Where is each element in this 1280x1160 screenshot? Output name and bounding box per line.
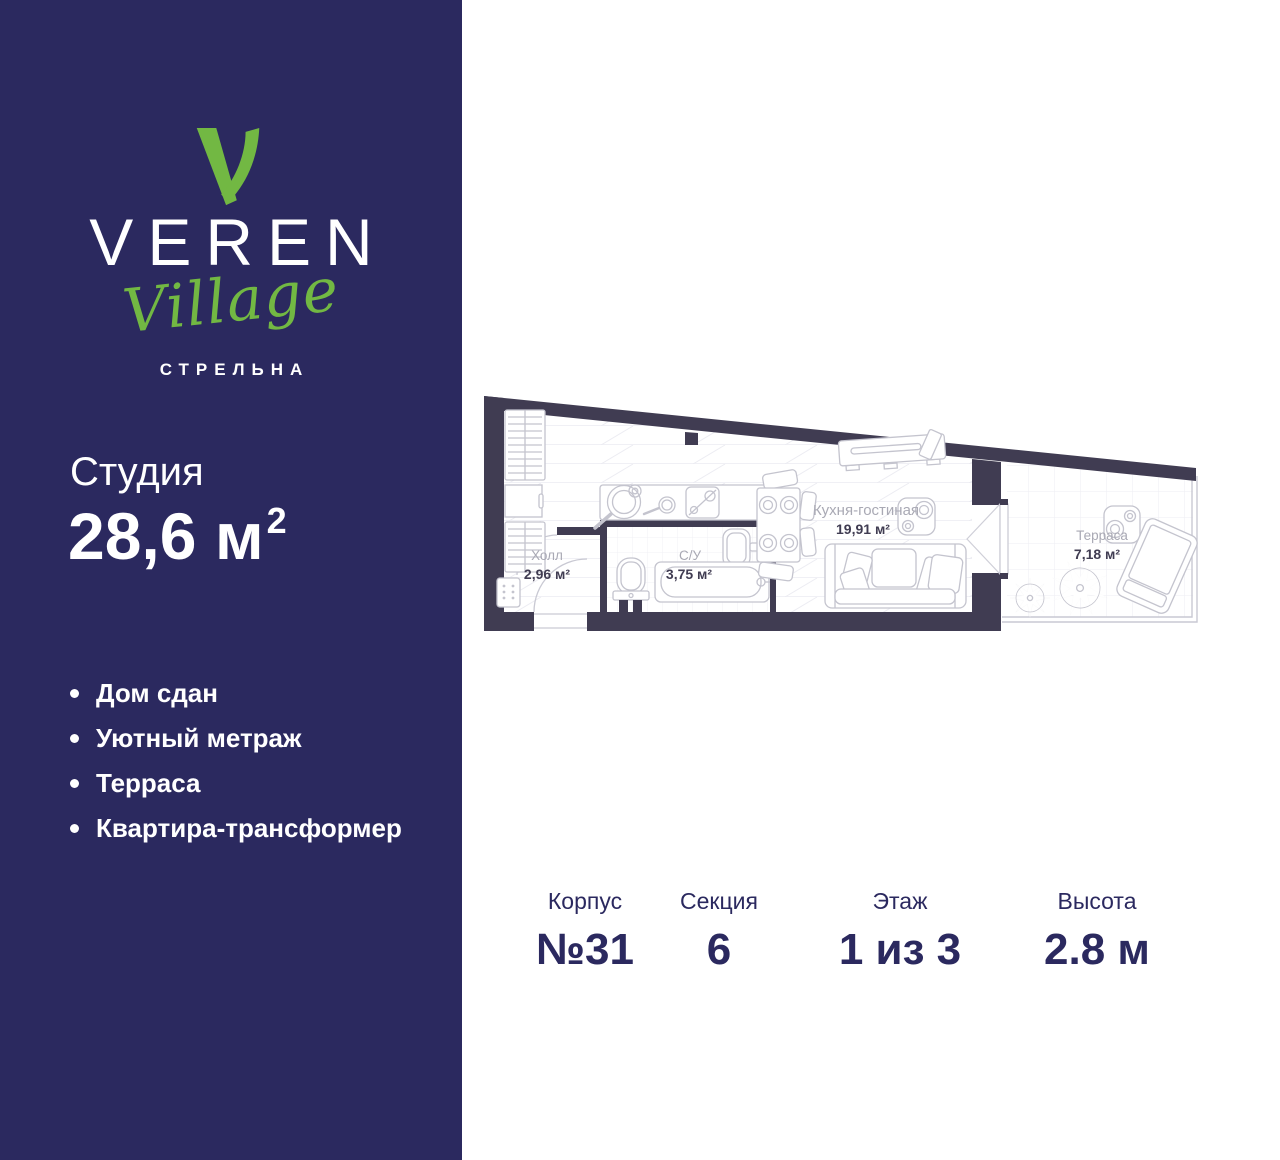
feature-label: Квартира-трансформер bbox=[96, 815, 402, 841]
spec-value: 1 из 3 bbox=[839, 925, 961, 975]
spec-value: №31 bbox=[536, 925, 634, 975]
spec-label: Корпус bbox=[536, 888, 634, 915]
room-area: 19,91 м² bbox=[836, 521, 890, 537]
feature-item: Дом сдан bbox=[70, 680, 402, 706]
room-area: 7,18 м² bbox=[1074, 546, 1120, 562]
room-area: 2,96 м² bbox=[524, 566, 570, 582]
feature-label: Дом сдан bbox=[96, 680, 218, 706]
floor-plan: Холл 2,96 м² С/У 3,75 м² Кухня-гостиная … bbox=[483, 388, 1205, 634]
room-label: С/У bbox=[679, 548, 702, 563]
plant-icon bbox=[1010, 578, 1050, 618]
listing-area: 28,6 м2 bbox=[68, 498, 287, 574]
spec-floor: Этаж 1 из 3 bbox=[839, 888, 961, 975]
area-unit: м bbox=[215, 499, 264, 573]
room-label: Терраса bbox=[1076, 528, 1128, 543]
feature-item: Терраса bbox=[70, 770, 402, 796]
spec-label: Этаж bbox=[839, 888, 961, 915]
room-label: Кухня-гостиная bbox=[813, 502, 919, 519]
brand-v-icon bbox=[195, 128, 261, 212]
hall-cabinet bbox=[505, 485, 543, 517]
spec-value: 6 bbox=[680, 925, 758, 975]
spec-label: Секция bbox=[680, 888, 758, 915]
terrace-door bbox=[967, 499, 1008, 579]
spec-label: Высота bbox=[1044, 888, 1150, 915]
bullet-icon bbox=[70, 734, 79, 743]
bullet-icon bbox=[70, 779, 79, 788]
room-label: Холл bbox=[531, 548, 563, 563]
area-sup: 2 bbox=[267, 500, 287, 541]
sidebar-panel: VEREN Village СТРЕЛЬНА Студия 28,6 м2 До… bbox=[0, 0, 462, 1160]
spec-value: 2.8 м bbox=[1044, 925, 1150, 975]
feature-item: Уютный метраж bbox=[70, 725, 402, 751]
wardrobe-lower bbox=[505, 522, 545, 572]
bullet-icon bbox=[70, 689, 79, 698]
bullet-icon bbox=[70, 824, 79, 833]
spec-section: Секция 6 bbox=[680, 888, 758, 975]
feature-item: Квартира-трансформер bbox=[70, 815, 402, 841]
spec-building: Корпус №31 bbox=[536, 888, 634, 975]
feature-label: Уютный метраж bbox=[96, 725, 301, 751]
area-value: 28,6 bbox=[68, 499, 196, 573]
features-list: Дом сдан Уютный метраж Терраса Квартира-… bbox=[70, 680, 402, 860]
electric-panel bbox=[497, 578, 520, 607]
spec-height: Высота 2.8 м bbox=[1044, 888, 1150, 975]
room-area: 3,75 м² bbox=[666, 566, 712, 582]
feature-label: Терраса bbox=[96, 770, 201, 796]
listing-type: Студия bbox=[70, 450, 204, 495]
brand-city: СТРЕЛЬНА bbox=[0, 360, 462, 380]
sofa bbox=[825, 544, 966, 608]
wardrobe-upper bbox=[505, 410, 545, 480]
